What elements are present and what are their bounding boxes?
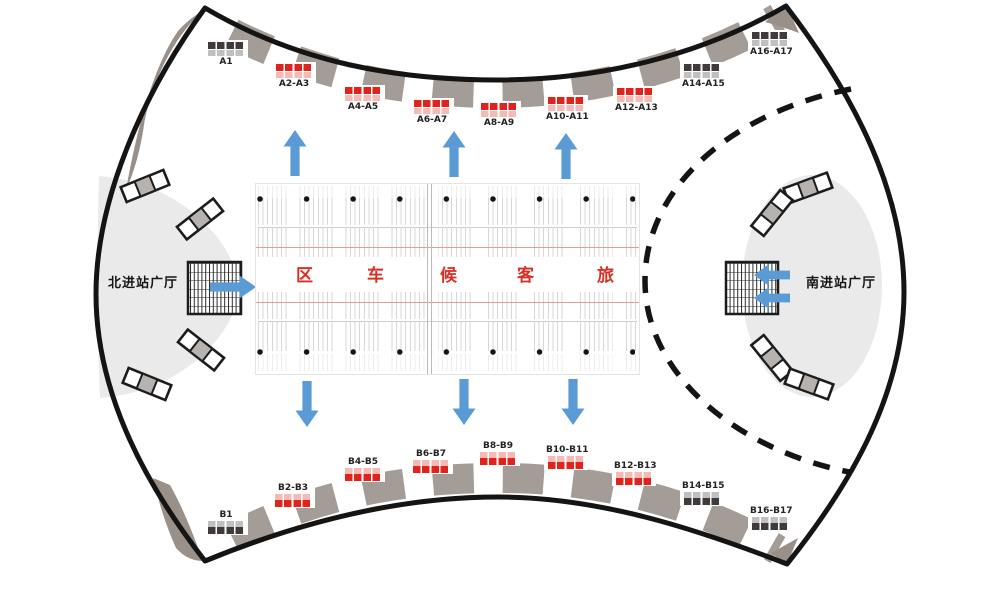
gate-label: B6-B7 (411, 449, 451, 459)
flow-arrow-up-icon (443, 131, 466, 177)
gate-indicator (345, 87, 381, 94)
gate-indicator-shadow (345, 95, 381, 101)
gate-label: A16-A17 (750, 47, 790, 57)
gate-B1: B1 (204, 508, 248, 535)
north-hall-label: 北进站广厅 (108, 272, 178, 291)
gate-indicator (276, 64, 312, 71)
waiting-area: 区 车 候 客 旅 (255, 183, 640, 375)
gate-label: B4-B5 (343, 457, 383, 467)
gate-B12-B13: B12-B13 (612, 459, 656, 486)
south-hall-label: 南进站广厅 (806, 272, 876, 291)
gate-indicator-shadow (548, 105, 584, 111)
gate-indicator (481, 103, 517, 110)
gate-indicator-shadow (275, 494, 311, 500)
gate-label: B10-B11 (546, 445, 586, 455)
guide-line (256, 302, 639, 303)
stairs-south (726, 262, 778, 314)
gate-label: A14-A15 (682, 79, 722, 89)
gate-label: B16-B17 (750, 506, 790, 516)
seat-back-line (258, 319, 637, 322)
gate-indicator-shadow (414, 108, 450, 114)
waiting-area-char: 车 (367, 268, 384, 285)
column-dots (257, 196, 635, 202)
gate-indicator-shadow (276, 72, 312, 78)
gate-indicator (208, 527, 244, 534)
flow-arrow-down-icon (562, 379, 585, 425)
gate-B14-B15: B14-B15 (680, 479, 724, 506)
gate-indicator-shadow (208, 50, 244, 56)
gate-indicator-shadow (548, 456, 584, 462)
gate-A14-A15: A14-A15 (680, 62, 724, 90)
gate-A10-A11: A10-A11 (544, 95, 588, 123)
gate-indicator (752, 32, 788, 39)
gate-label: A1 (206, 57, 246, 67)
gate-A4-A5: A4-A5 (341, 85, 385, 113)
gate-indicator (617, 88, 653, 95)
gate-indicator-shadow (752, 517, 788, 523)
gate-A1: A1 (204, 40, 248, 68)
gate-indicator-shadow (345, 468, 381, 474)
gate-indicator (752, 523, 788, 530)
gate-B2-B3: B2-B3 (271, 481, 315, 508)
waiting-area-char: 旅 (597, 268, 614, 285)
flow-arrow-down-icon (453, 379, 476, 425)
waiting-area-char: 区 (296, 268, 313, 285)
flow-arrow-up-icon (284, 130, 307, 176)
gate-label: B12-B13 (614, 461, 654, 471)
station-floorplan: 区 车 候 客 旅 北进站广厅 南进站广厅 A1 A2-A3 A4-A5 A6-… (0, 0, 1008, 590)
gate-indicator (684, 64, 720, 71)
gate-B16-B17: B16-B17 (748, 504, 792, 531)
gate-indicator (414, 100, 450, 107)
gate-label: A10-A11 (546, 112, 586, 122)
flow-arrow-up-icon (555, 133, 578, 179)
gate-A16-A17: A16-A17 (748, 30, 792, 58)
gate-B8-B9: B8-B9 (476, 439, 520, 466)
gate-label: B8-B9 (478, 441, 518, 451)
gate-label: A6-A7 (412, 115, 452, 125)
gate-indicator (275, 500, 311, 507)
gate-indicator-shadow (684, 492, 720, 498)
gate-label: A8-A9 (479, 118, 519, 128)
gate-indicator (345, 474, 381, 481)
gate-indicator (616, 478, 652, 485)
gate-indicator-shadow (480, 452, 516, 458)
gate-label: A4-A5 (343, 102, 383, 112)
gate-indicator-shadow (616, 472, 652, 478)
waiting-area-char: 客 (517, 268, 534, 285)
gate-A2-A3: A2-A3 (272, 62, 316, 90)
gate-indicator (208, 42, 244, 49)
gate-B4-B5: B4-B5 (341, 455, 385, 482)
gate-indicator-shadow (413, 460, 449, 466)
gate-label: B14-B15 (682, 481, 722, 491)
gate-A6-A7: A6-A7 (410, 98, 454, 126)
gate-indicator-shadow (208, 521, 244, 527)
gate-label: A2-A3 (274, 79, 314, 89)
gate-A12-A13: A12-A13 (613, 86, 657, 114)
guide-line (256, 247, 639, 248)
gate-indicator (413, 466, 449, 473)
gate-B6-B7: B6-B7 (409, 447, 453, 474)
seat-row-band (258, 354, 637, 371)
gate-A8-A9: A8-A9 (477, 101, 521, 129)
seat-back-line (258, 225, 637, 228)
column-dots (257, 349, 635, 355)
flow-arrow-down-icon (296, 381, 319, 427)
gate-B10-B11: B10-B11 (544, 443, 588, 470)
gate-indicator (480, 458, 516, 465)
gate-indicator (548, 462, 584, 469)
gate-indicator (548, 97, 584, 104)
gate-label: B2-B3 (273, 483, 313, 493)
corner-shade-top-left (126, 10, 204, 190)
gate-indicator (684, 498, 720, 505)
gate-indicator-shadow (684, 72, 720, 78)
gate-label: A12-A13 (615, 103, 655, 113)
gate-indicator-shadow (617, 96, 653, 102)
center-divider (427, 184, 432, 374)
waiting-area-char: 候 (440, 268, 457, 285)
gate-label: B1 (206, 510, 246, 520)
gate-indicator-shadow (752, 40, 788, 46)
gate-indicator-shadow (481, 111, 517, 117)
